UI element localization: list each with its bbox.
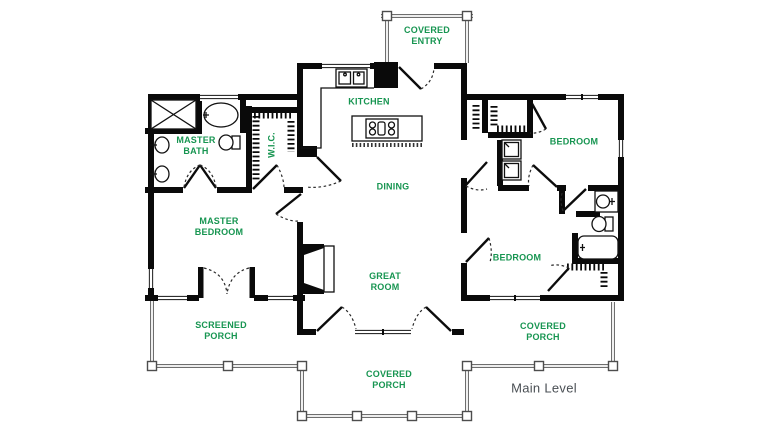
bath2-toilet-icon xyxy=(592,217,613,232)
level-label: Main Level xyxy=(511,381,577,396)
refrigerator-icon xyxy=(374,62,398,88)
floor-plan-drawing xyxy=(0,0,768,432)
label-master-bedroom: MASTER BEDROOM xyxy=(195,216,243,239)
label-kitchen: KITCHEN xyxy=(348,96,389,107)
label-covered-porch-right: COVERED PORCH xyxy=(520,321,566,344)
bath2-sink-icon xyxy=(595,191,618,212)
washer-dryer-icon xyxy=(502,140,521,180)
label-bedroom-lower: BEDROOM xyxy=(493,252,541,263)
label-screened-porch: SCREENED PORCH xyxy=(195,320,247,343)
label-covered-porch-bottom: COVERED PORCH xyxy=(366,369,412,392)
fireplace-icon xyxy=(297,244,334,294)
kitchen-island xyxy=(352,116,422,145)
label-covered-entry: COVERED ENTRY xyxy=(404,25,450,48)
floor-plan: COVERED ENTRY KITCHEN MASTER BATH W.I.C.… xyxy=(0,0,768,432)
label-dining: DINING xyxy=(377,181,410,192)
kitchen-sink-icon xyxy=(336,69,367,87)
porch-railing xyxy=(152,301,613,416)
shower-icon xyxy=(151,100,196,129)
label-master-bath: MASTER BATH xyxy=(176,135,215,158)
bathtub-icon xyxy=(203,103,238,127)
toilet-icon xyxy=(219,135,240,150)
label-wic: W.I.C. xyxy=(266,132,277,158)
label-great-room: GREAT ROOM xyxy=(369,271,401,294)
bath2-tub-icon xyxy=(578,236,618,259)
label-bedroom-upper: BEDROOM xyxy=(550,136,598,147)
